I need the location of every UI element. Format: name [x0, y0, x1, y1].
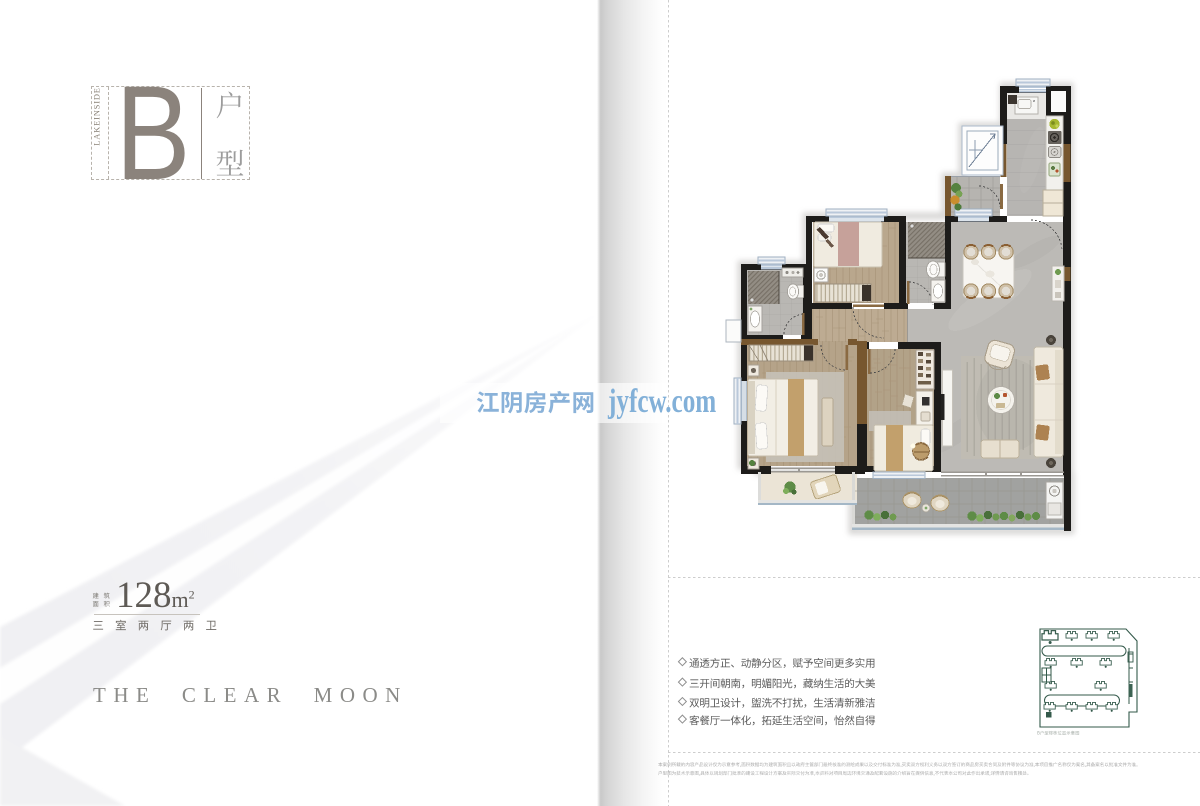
svg-text:jyfcw.com: jyfcw.com — [607, 382, 716, 420]
